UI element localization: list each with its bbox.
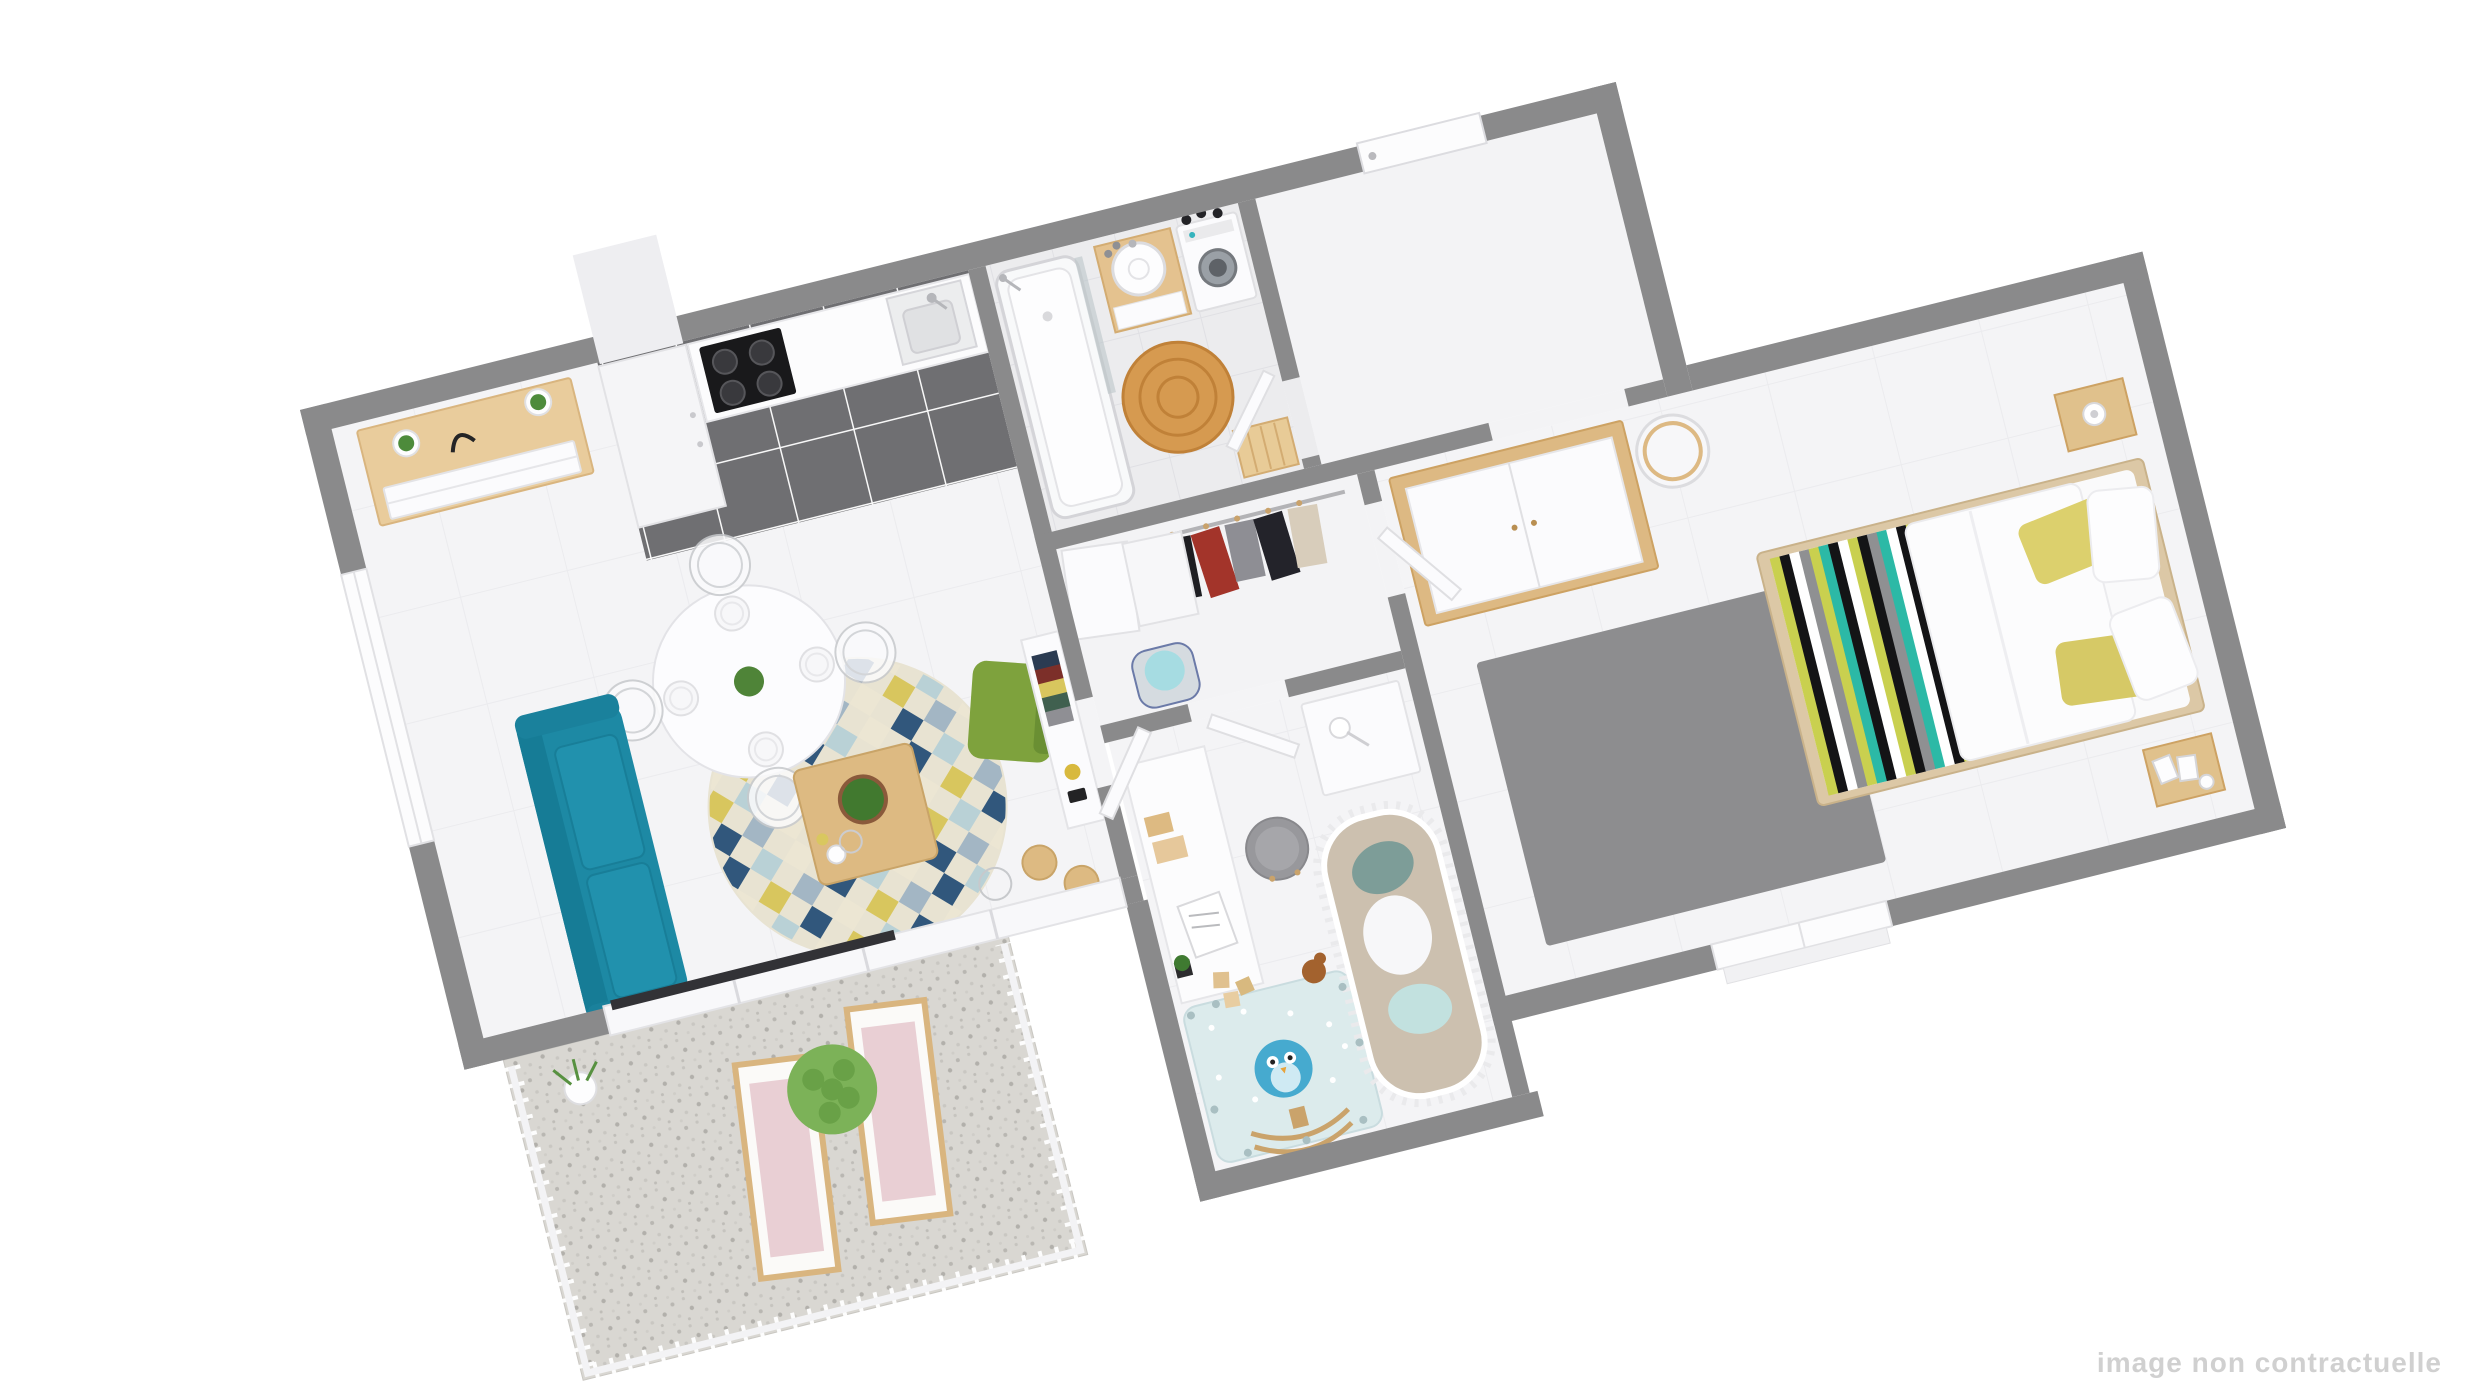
watermark-text: image non contractuelle	[2097, 1347, 2442, 1379]
toy-block-3	[1223, 991, 1240, 1008]
photo-frame-2	[2177, 755, 2198, 781]
floorplan-3d-render	[0, 0, 2480, 1395]
toy-block-1	[1213, 972, 1230, 989]
pillow-white-1	[2086, 486, 2160, 583]
floorplan-page: image non contractuelle	[0, 0, 2480, 1395]
